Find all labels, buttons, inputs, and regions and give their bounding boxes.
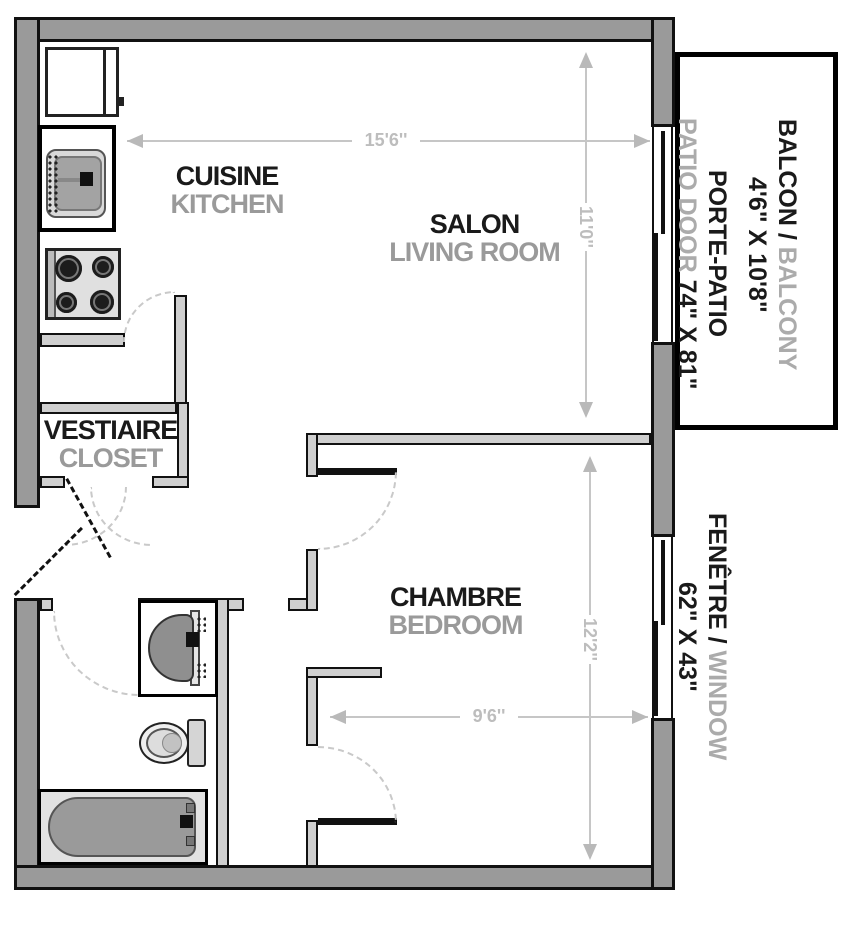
label-patio-door-en: PATIO DOOR	[673, 118, 701, 280]
wall-exterior-bottom	[14, 865, 675, 890]
label-patio-door-size: 74" X 81"	[673, 280, 701, 390]
wall-exterior-left-lower	[14, 598, 40, 890]
label-balcony: BALCON / BALCONY 4'6" X 10'8"	[742, 95, 802, 395]
stove-burner-icon	[56, 292, 77, 313]
label-kitchen-en: KITCHEN	[137, 190, 317, 218]
bathtub-knob-icon	[186, 803, 195, 813]
bathtub-basin	[48, 797, 196, 857]
label-balcony-size: 4'6" X 10'8"	[742, 95, 772, 395]
arrowhead-left-icon	[330, 710, 346, 724]
dimension-bedroom-width: 9'6''	[460, 705, 518, 728]
stove-burner-icon	[90, 290, 114, 314]
bathtub-knob-icon	[186, 836, 195, 846]
kitchen-faucet-dots	[47, 154, 59, 214]
fridge-icon	[45, 47, 119, 117]
wall-closet-bottom-right	[152, 476, 189, 488]
label-bedroom-en: BEDROOM	[372, 611, 539, 639]
window-sliding-panel-upper	[661, 540, 665, 625]
arrowhead-up-icon	[583, 456, 597, 472]
wall-bedroom-nook	[306, 667, 382, 678]
label-patio-door: PORTE-PATIO PATIO DOOR 74" X 81"	[672, 108, 732, 400]
label-window-fr: FENÊTRE /	[703, 513, 731, 651]
stove-burner-icon	[55, 255, 82, 282]
wall-closet-bottom-left	[40, 476, 65, 488]
label-living-room-fr: SALON	[352, 210, 597, 238]
arrowhead-right-icon	[632, 710, 648, 724]
dimension-bedroom-depth: 12'2''	[578, 615, 601, 664]
bathroom-door-arc	[53, 611, 139, 696]
wall-closet-top	[40, 402, 177, 414]
label-kitchen-fr: CUISINE	[137, 162, 317, 190]
wall-bedroom-top	[306, 433, 651, 445]
label-bedroom-fr: CHAMBRE	[372, 583, 539, 611]
kitchen-sink-basin	[54, 156, 102, 211]
label-living-room-en: LIVING ROOM	[352, 238, 597, 266]
bedroom-door-arc-bottom	[318, 746, 397, 823]
arrowhead-down-icon	[579, 402, 593, 418]
window-sliding-panel-lower	[654, 621, 658, 716]
arrowhead-up-icon	[579, 52, 593, 68]
toilet-lid-circle	[162, 733, 182, 753]
wall-bathroom-top-stub	[40, 598, 53, 611]
label-balcony-fr: BALCON /	[773, 119, 801, 247]
wall-bedroom-left-d	[306, 820, 318, 867]
arrowhead-right-icon	[634, 134, 650, 148]
patio-door-sliding-panel-lower	[654, 233, 658, 341]
bathroom-faucet-dots	[196, 616, 206, 632]
wall-bedroom-left-a	[306, 433, 318, 477]
label-patio-door-fr: PORTE-PATIO	[702, 108, 732, 400]
stove-burner-icon	[92, 256, 114, 278]
kitchen-door-arc	[123, 291, 175, 342]
wall-kitchen-door-jamb	[174, 295, 187, 412]
entry-door-dash-2	[14, 527, 83, 596]
bathroom-faucet-icon	[186, 632, 199, 647]
bathtub-faucet-icon	[180, 815, 193, 828]
label-bedroom: CHAMBRE BEDROOM	[372, 583, 539, 640]
label-balcony-en: BALCONY	[773, 247, 801, 371]
label-window-size: 62" X 43"	[672, 492, 702, 782]
label-window-en: WINDOW	[703, 651, 731, 761]
arrowhead-down-icon	[583, 844, 597, 860]
wall-bedroom-left-c	[306, 667, 318, 746]
dimension-living-width: 15'6''	[352, 129, 420, 152]
label-living-room: SALON LIVING ROOM	[352, 210, 597, 267]
wall-exterior-top	[14, 17, 675, 42]
bedroom-door-arc-top	[318, 471, 397, 550]
label-window: FENÊTRE / WINDOW 62" X 43"	[672, 492, 732, 782]
label-kitchen: CUISINE KITCHEN	[137, 162, 317, 219]
wall-bedroom-left-b	[306, 549, 318, 611]
label-closet: VESTIAIRE CLOSET	[28, 416, 193, 473]
floor-plan: 15'6'' 11'0'' 12'2'' 9'6'' CUISINE KITCH…	[0, 0, 850, 947]
bathroom-faucet-dots	[196, 662, 206, 678]
label-closet-fr: VESTIAIRE	[28, 416, 193, 444]
arrowhead-left-icon	[127, 134, 143, 148]
fridge-handle-icon	[117, 97, 124, 106]
label-closet-en: CLOSET	[28, 444, 193, 472]
kitchen-faucet-icon	[80, 172, 93, 186]
toilet-tank-icon	[187, 719, 206, 767]
patio-door-sliding-panel-upper	[661, 131, 665, 234]
wall-kitchen-south	[40, 333, 125, 347]
